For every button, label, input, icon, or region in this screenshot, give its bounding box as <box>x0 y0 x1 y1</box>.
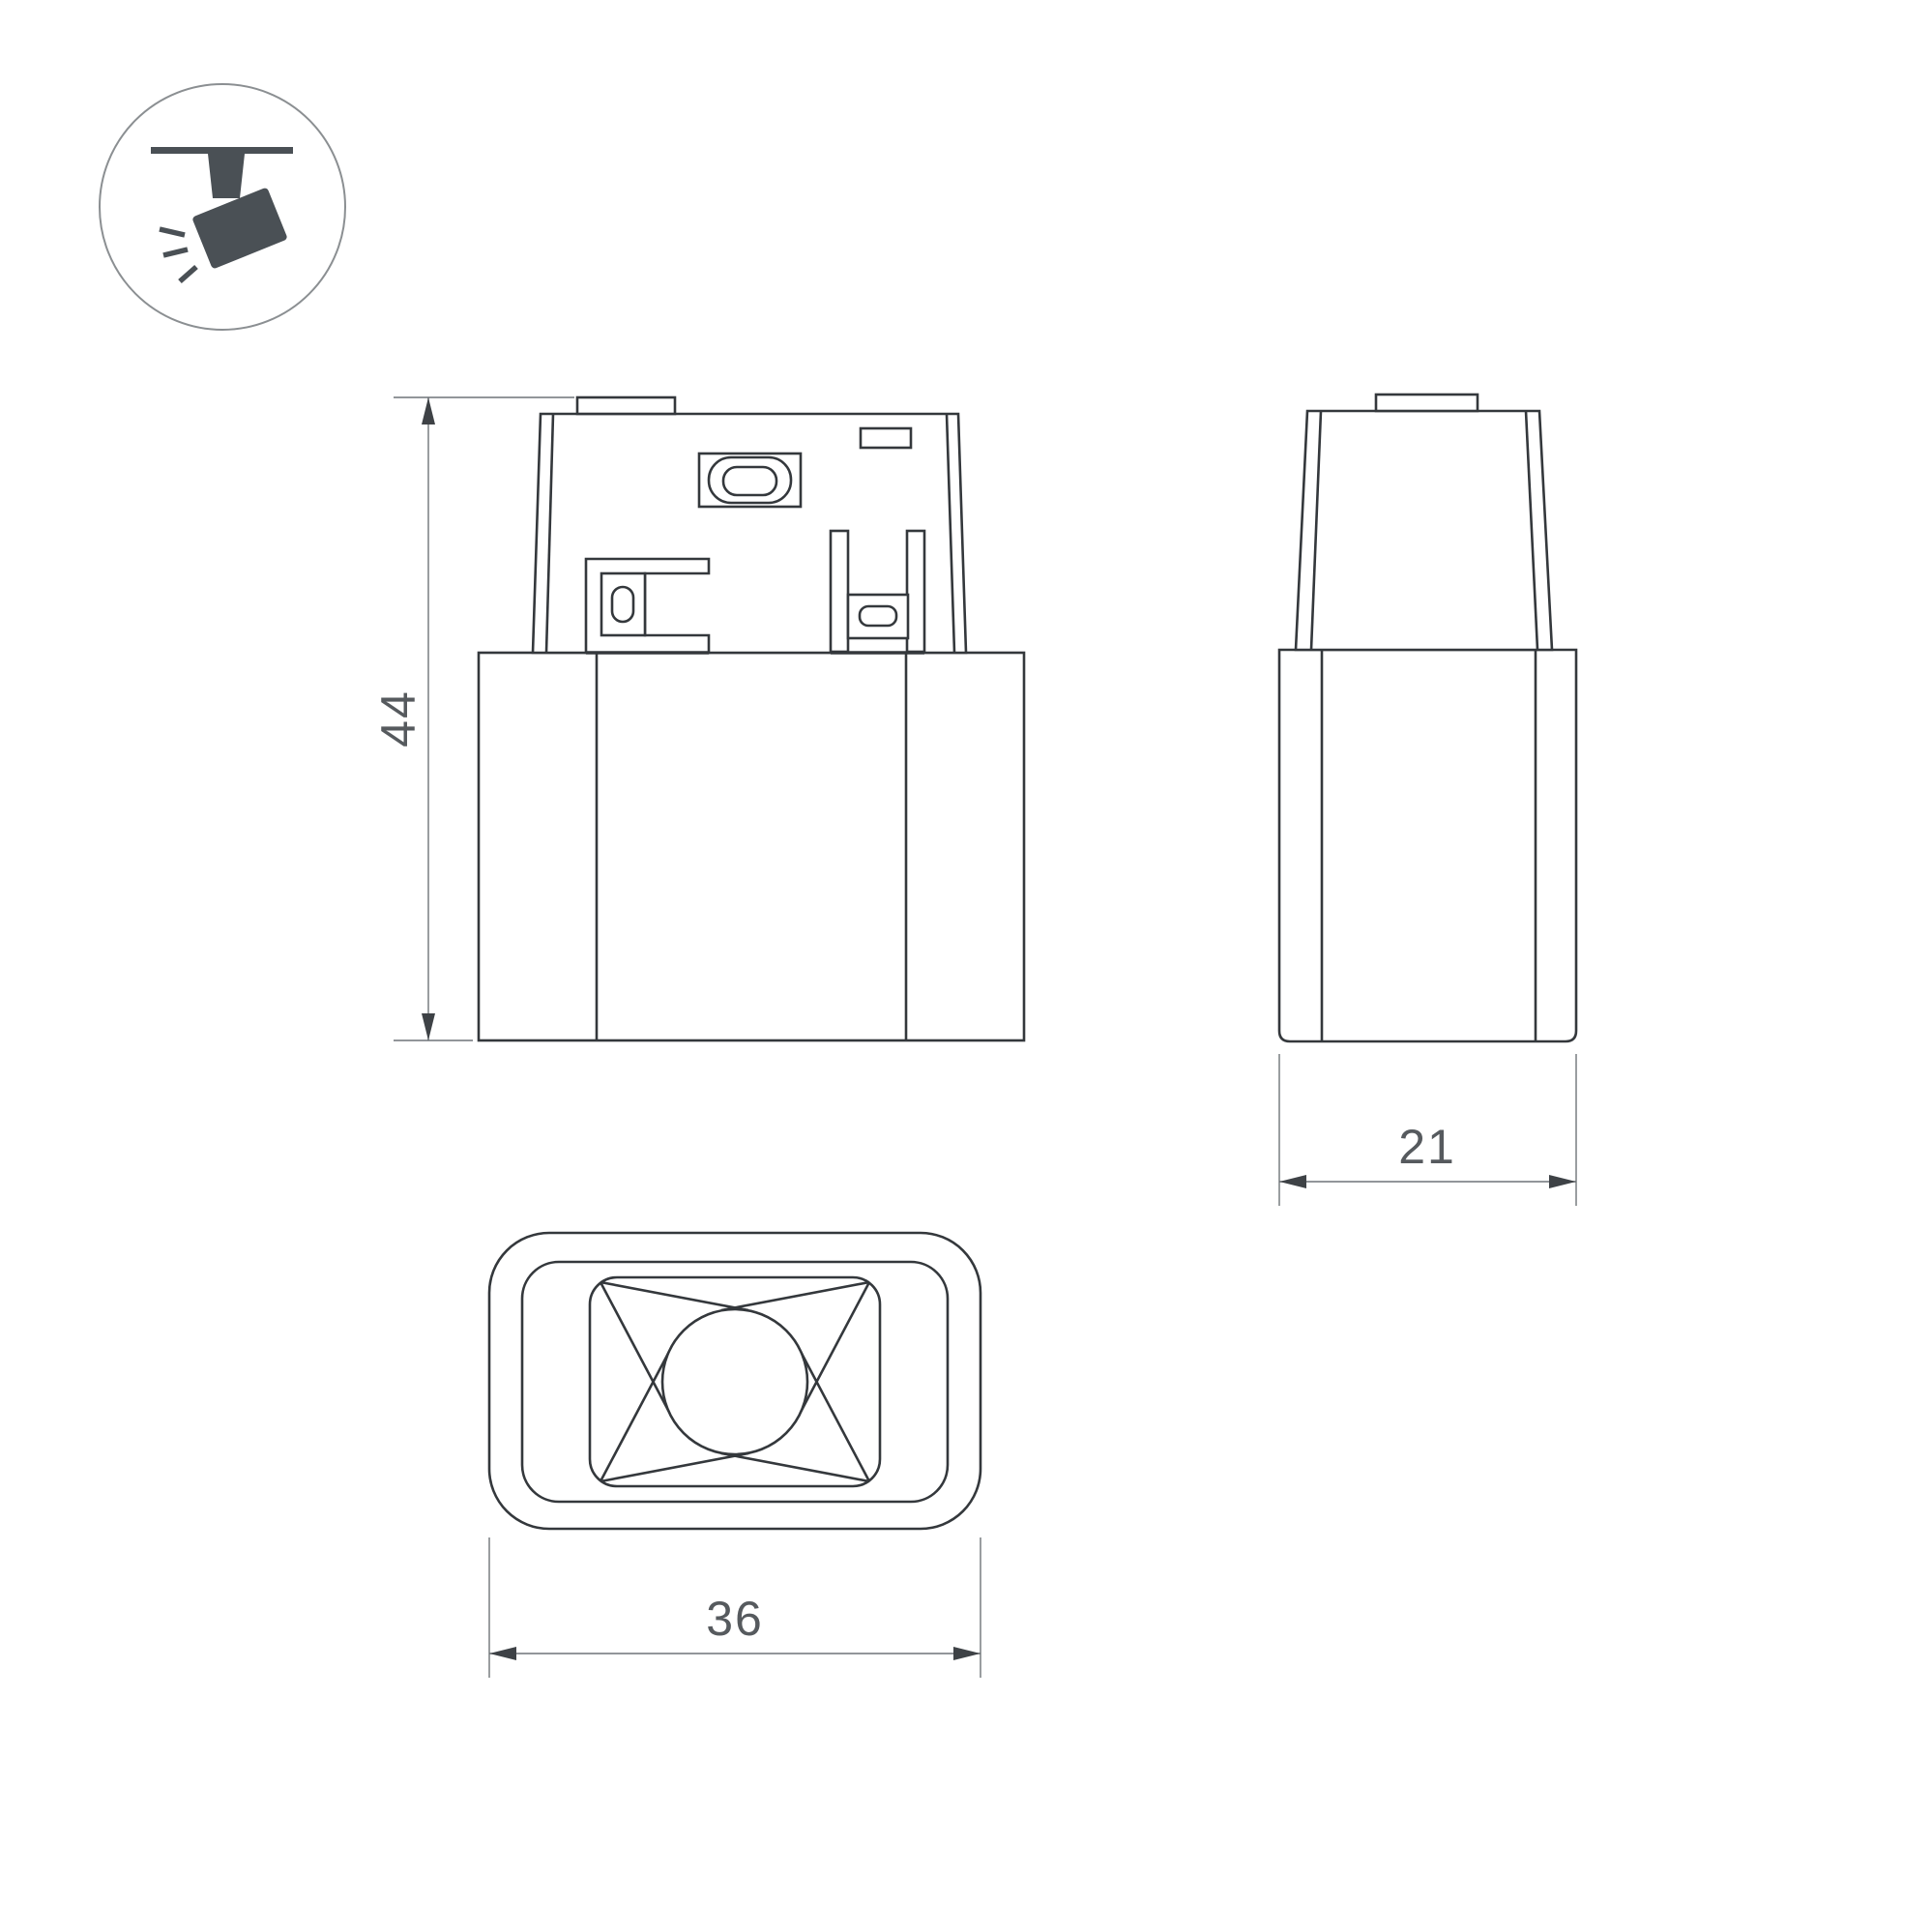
dim-21-arrow-left <box>1279 1175 1306 1188</box>
dim-36-arrow-left <box>489 1647 516 1660</box>
technical-drawing-svg: 44 21 <box>0 0 1932 1932</box>
dim-36-arrow-right <box>953 1647 981 1660</box>
side-top-tab <box>1376 395 1478 411</box>
front-view: 44 <box>371 397 1024 1040</box>
dim-21-arrow-right <box>1549 1175 1576 1188</box>
dim-44-arrow-down <box>422 1013 435 1040</box>
icon-stem <box>208 154 245 198</box>
front-left-contact-slot <box>612 587 633 622</box>
front-body <box>479 653 1024 1040</box>
side-head <box>1296 411 1552 650</box>
dim-44-label: 44 <box>371 689 425 747</box>
icon-track-bar <box>151 147 293 154</box>
front-oval-connector <box>699 454 801 507</box>
dimension-bottom-width: 36 <box>489 1537 981 1678</box>
drawing-page: 44 21 <box>0 0 1932 1932</box>
side-view: 21 <box>1279 395 1576 1206</box>
dimension-side-width: 21 <box>1279 1054 1576 1206</box>
front-small-port <box>861 428 911 448</box>
front-top-tab <box>577 397 675 414</box>
side-body <box>1279 650 1576 1041</box>
dim-21-label: 21 <box>1398 1120 1456 1174</box>
bottom-view: 36 <box>489 1233 981 1678</box>
track-spotlight-icon <box>100 84 345 330</box>
dim-36-label: 36 <box>706 1592 764 1646</box>
front-right-contact-slot <box>860 606 896 626</box>
dim-44-arrow-up <box>422 397 435 424</box>
